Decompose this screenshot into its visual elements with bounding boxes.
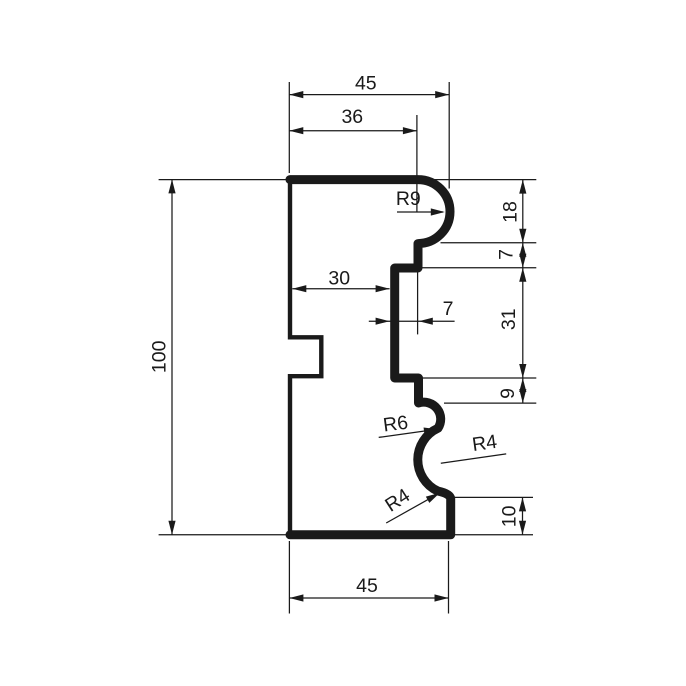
svg-text:7: 7 (443, 298, 454, 320)
svg-text:18: 18 (500, 201, 522, 223)
svg-text:R9: R9 (396, 188, 421, 210)
svg-text:10: 10 (499, 505, 521, 527)
svg-text:30: 30 (328, 268, 350, 290)
svg-text:31: 31 (498, 308, 520, 330)
svg-text:45: 45 (355, 73, 377, 95)
svg-text:R6: R6 (382, 412, 410, 437)
svg-text:7: 7 (495, 249, 517, 260)
svg-text:36: 36 (341, 106, 363, 128)
svg-text:R4: R4 (471, 431, 499, 456)
svg-text:100: 100 (149, 340, 171, 373)
svg-text:45: 45 (356, 575, 378, 597)
svg-text:9: 9 (497, 388, 519, 399)
